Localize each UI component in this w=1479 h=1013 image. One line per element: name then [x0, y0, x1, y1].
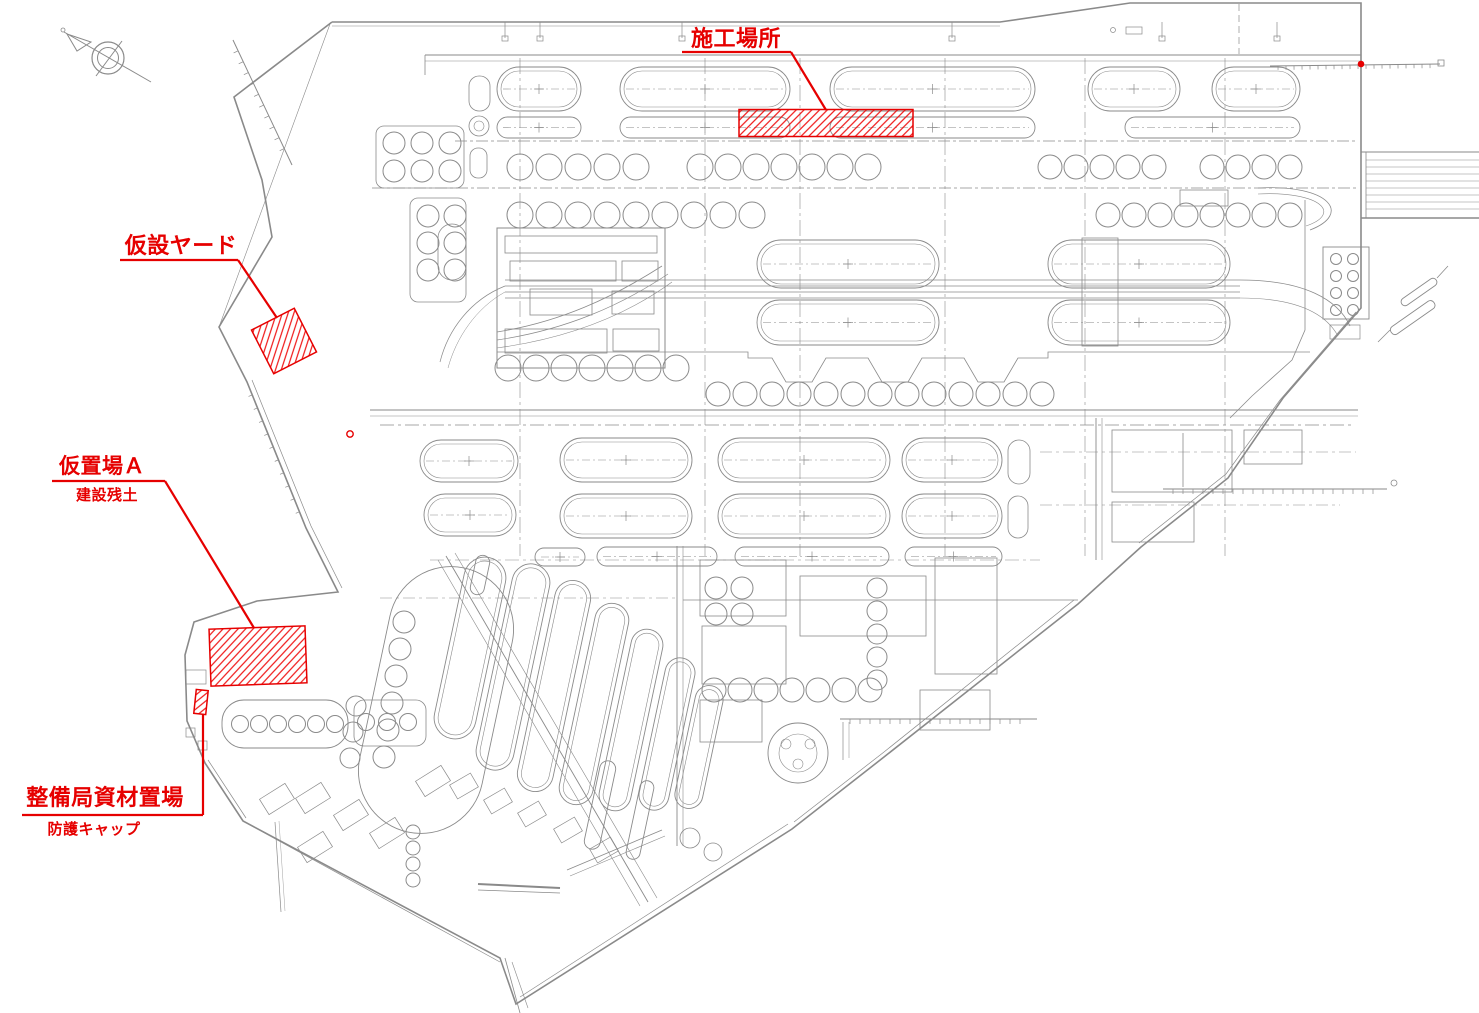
site-plan-canvas: 施工場所仮設ヤード仮置場Ａ建設残土整備局資材置場防護キャップ: [0, 0, 1479, 1013]
hatched-area-temporary-storage-a: [209, 626, 307, 686]
hatched-area-maintenance-bureau-material-storage: [194, 689, 208, 714]
site-plan-drawing: [61, 3, 1479, 1013]
annotation-temporary-yard: 仮設ヤード: [120, 233, 317, 374]
site-plan-svg: 施工場所仮設ヤード仮置場Ａ建設残土整備局資材置場防護キャップ: [0, 0, 1479, 1013]
annotation-construction-site: 施工場所: [682, 26, 913, 137]
hatched-area-construction-site: [739, 110, 913, 137]
sublabel-temporary-storage-a: 建設残土: [76, 486, 138, 504]
leader-line-temporary-yard: [238, 260, 277, 318]
annotation-temporary-storage-a: 仮置場Ａ建設残土: [52, 455, 307, 686]
label-temporary-yard: 仮設ヤード: [124, 233, 238, 258]
pier-end-marker: [1358, 61, 1363, 66]
small-ring-marker: [347, 431, 353, 437]
hatched-area-temporary-yard: [251, 308, 316, 373]
label-construction-site: 施工場所: [691, 26, 781, 51]
sublabel-maintenance-bureau-material-storage: 防護キャップ: [47, 820, 141, 838]
annotation-overlay: 施工場所仮設ヤード仮置場Ａ建設残土整備局資材置場防護キャップ: [22, 26, 913, 838]
leader-line-temporary-storage-a: [165, 481, 254, 628]
annotation-maintenance-bureau-material-storage: 整備局資材置場防護キャップ: [22, 689, 208, 838]
label-maintenance-bureau-material-storage: 整備局資材置場: [26, 785, 184, 810]
label-temporary-storage-a: 仮置場Ａ: [58, 455, 145, 478]
